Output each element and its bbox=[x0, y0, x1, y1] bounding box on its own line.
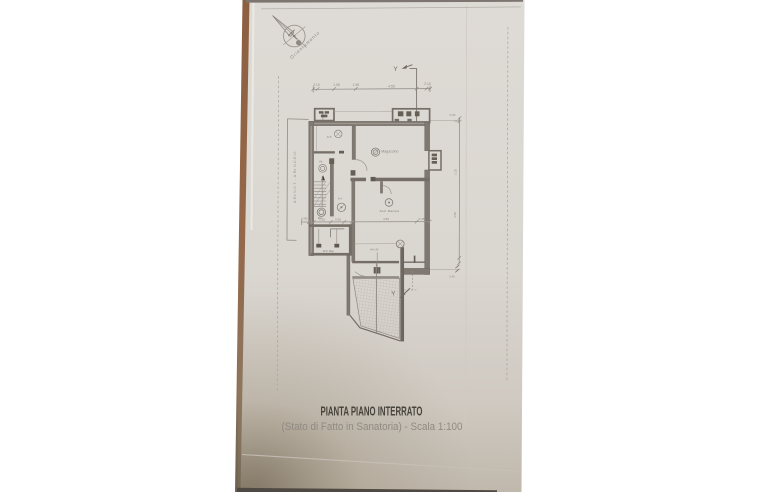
svg-text:3.50: 3.50 bbox=[453, 212, 457, 218]
svg-text:4.55: 4.55 bbox=[388, 84, 395, 88]
svg-text:0.30: 0.30 bbox=[450, 113, 456, 117]
svg-text:0.90: 0.90 bbox=[335, 217, 341, 221]
svg-text:A.Re N.C.T. - A.Re N.C.E.U.: A.Re N.C.T. - A.Re N.C.E.U. bbox=[293, 151, 297, 203]
svg-text:0.35: 0.35 bbox=[419, 217, 425, 221]
svg-text:W.b: W.b bbox=[338, 197, 343, 201]
svg-text:2.10: 2.10 bbox=[453, 169, 457, 175]
svg-text:0.80: 0.80 bbox=[302, 216, 308, 220]
svg-text:Y: Y bbox=[391, 291, 395, 298]
svg-text:H=2.40: H=2.40 bbox=[370, 248, 379, 252]
svg-text:4.50: 4.50 bbox=[383, 217, 389, 221]
svg-text:2.13: 2.13 bbox=[454, 120, 459, 123]
svg-text:PIANTA PIANO INTERRATO: PIANTA PIANO INTERRATO bbox=[321, 405, 423, 419]
svg-text:W.C. Dep.: W.C. Dep. bbox=[323, 249, 335, 253]
svg-text:Y: Y bbox=[393, 66, 398, 73]
svg-text:Sott.Rampa: Sott.Rampa bbox=[380, 209, 400, 213]
svg-text:1.90: 1.90 bbox=[353, 83, 360, 87]
svg-text:1.05: 1.05 bbox=[333, 83, 340, 87]
svg-text:0.40: 0.40 bbox=[449, 275, 455, 279]
svg-text:2.10: 2.10 bbox=[424, 82, 431, 86]
svg-text:Vb: Vb bbox=[319, 160, 323, 164]
svg-text:(Stato di Fatto in Sanatoria): (Stato di Fatto in Sanatoria) - Scala 1:… bbox=[282, 421, 463, 433]
svg-text:2.13: 2.13 bbox=[313, 83, 320, 87]
svg-text:C.T.: C.T. bbox=[327, 135, 333, 139]
svg-text:Magazzino: Magazzino bbox=[381, 150, 398, 154]
svg-text:1.10: 1.10 bbox=[319, 217, 325, 221]
